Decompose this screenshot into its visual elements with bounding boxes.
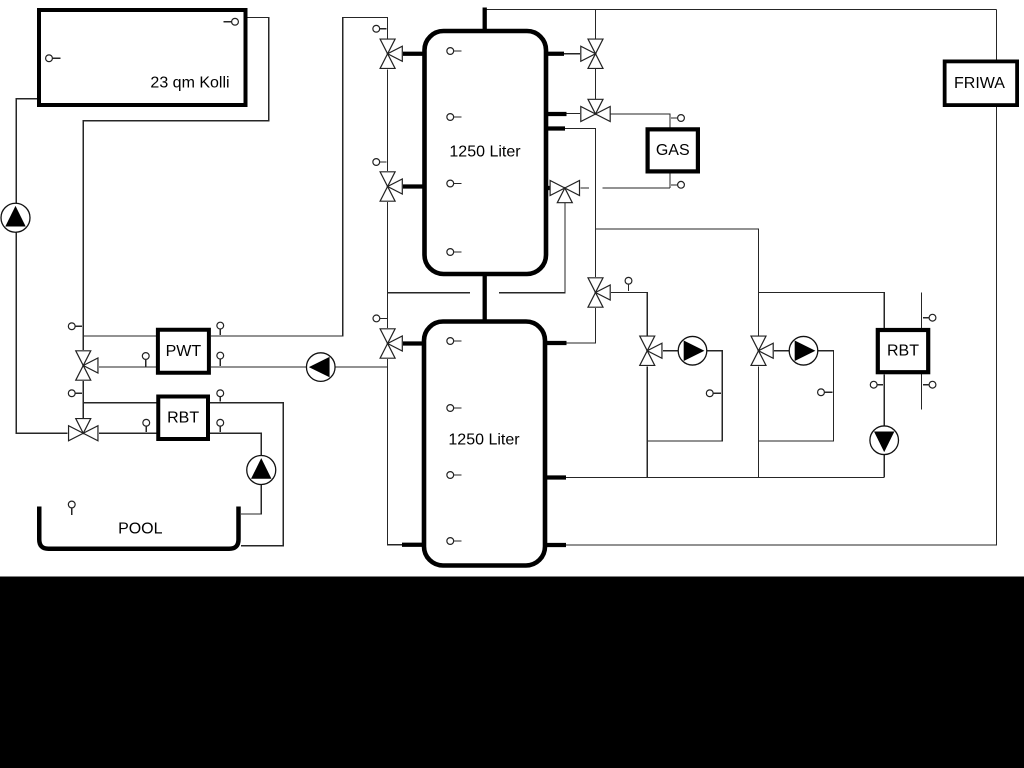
- svg-text:RBT: RBT: [887, 343, 919, 360]
- svg-text:GAS: GAS: [656, 142, 690, 159]
- svg-text:PWT: PWT: [166, 343, 202, 360]
- svg-text:POOL: POOL: [118, 521, 163, 538]
- svg-text:FRIWA: FRIWA: [954, 75, 1005, 92]
- svg-text:RBT: RBT: [167, 409, 199, 426]
- svg-text:23 qm Kolli: 23 qm Kolli: [150, 75, 229, 92]
- svg-text:1250 Liter: 1250 Liter: [449, 144, 521, 161]
- svg-text:1250 Liter: 1250 Liter: [448, 432, 520, 449]
